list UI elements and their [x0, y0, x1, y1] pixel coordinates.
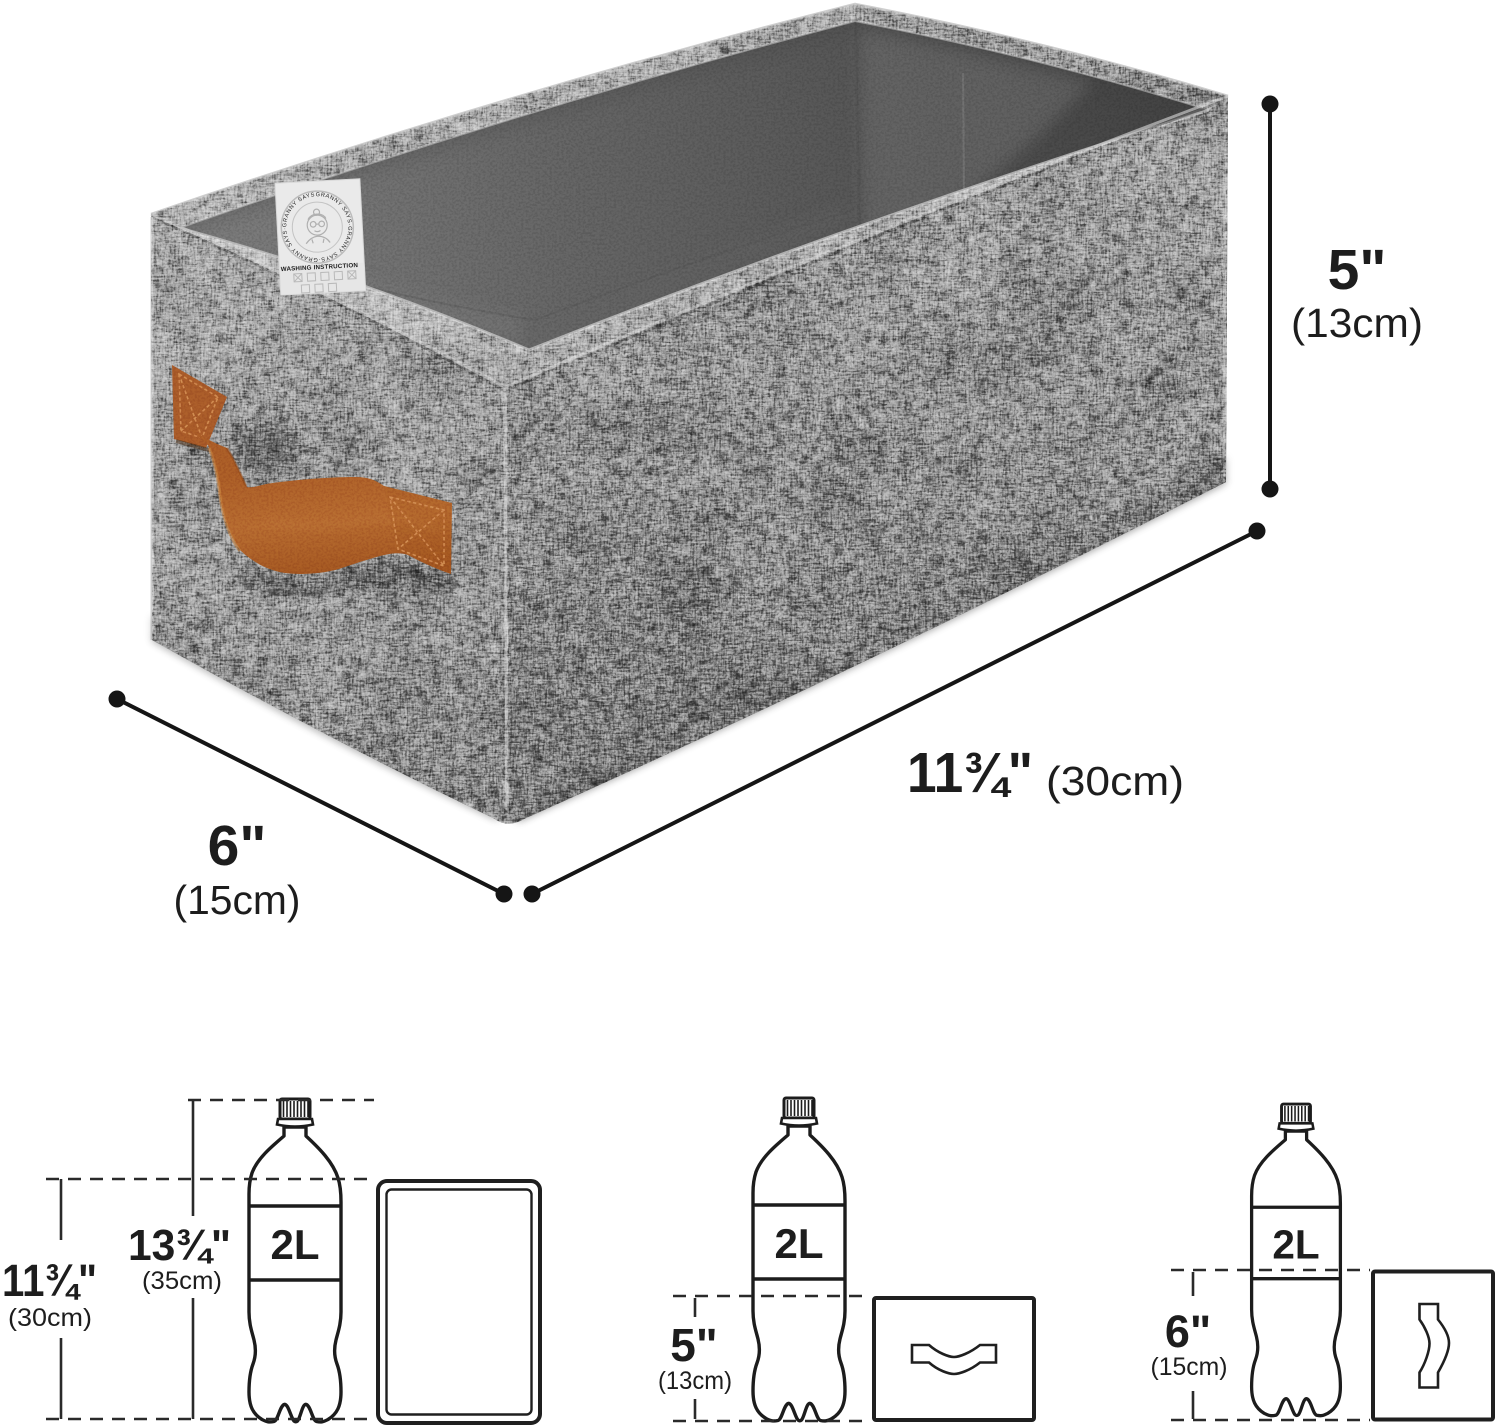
svg-text:(15cm): (15cm)	[1151, 1353, 1228, 1381]
svg-text:5": 5"	[1328, 238, 1387, 302]
svg-text:11¾": 11¾"	[907, 741, 1033, 805]
svg-text:13¾": 13¾"	[128, 1221, 231, 1270]
svg-text:5": 5"	[670, 1319, 717, 1371]
svg-text:6": 6"	[1165, 1306, 1211, 1357]
svg-text:(13cm): (13cm)	[658, 1367, 732, 1395]
svg-text:6": 6"	[208, 814, 267, 878]
svg-text:(30cm): (30cm)	[1046, 758, 1184, 804]
svg-text:(30cm): (30cm)	[8, 1304, 92, 1332]
svg-text:(13cm): (13cm)	[1291, 300, 1423, 346]
svg-text:(15cm): (15cm)	[174, 877, 301, 923]
svg-text:(35cm): (35cm)	[142, 1267, 222, 1295]
svg-text:11¾": 11¾"	[2, 1255, 97, 1306]
